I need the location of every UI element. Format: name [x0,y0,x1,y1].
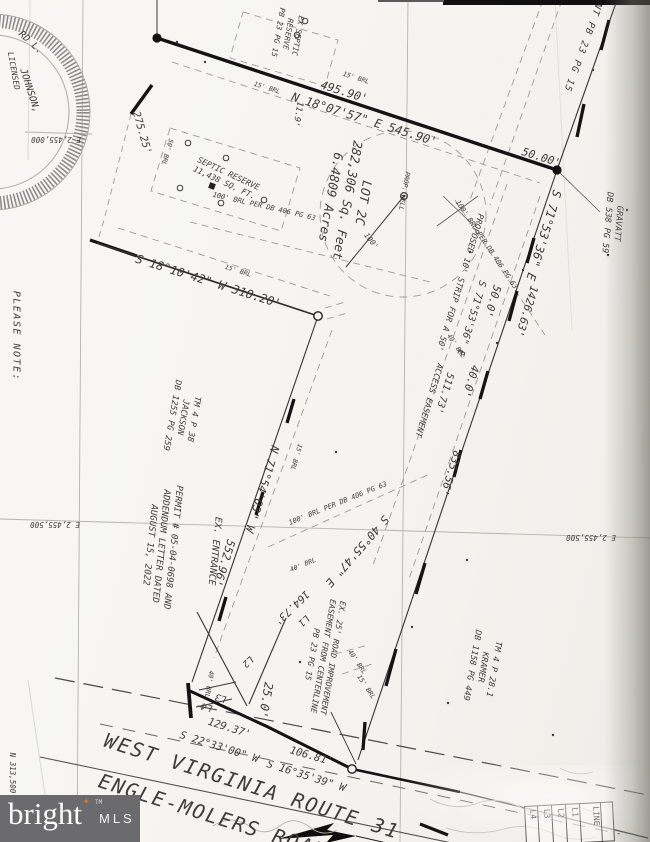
grid-label-e2455500-left: E 2,455,500 [30,519,80,529]
grid-label-n313500: N 313,500 [7,753,17,794]
scan-edge-shadow [604,0,650,842]
trademark-symbol: TM [95,799,102,806]
bright-mls-watermark: bright ✦ TM MLS [0,795,140,842]
bright-logo-star-icon: ✦ [83,794,90,807]
grid-label-e2455000: E 2,455,000 [31,134,81,144]
mls-logo-text: MLS [99,811,135,826]
scanned-survey-plat: PLEASE NOTE:E 2,455,000E 2,455,500E 2,45… [0,0,650,842]
surveyor-seal [0,14,90,210]
bright-logo-text: bright [8,796,82,832]
label-please-note: PLEASE NOTE: [10,291,23,381]
scan-edge-strip-light [378,0,444,2]
